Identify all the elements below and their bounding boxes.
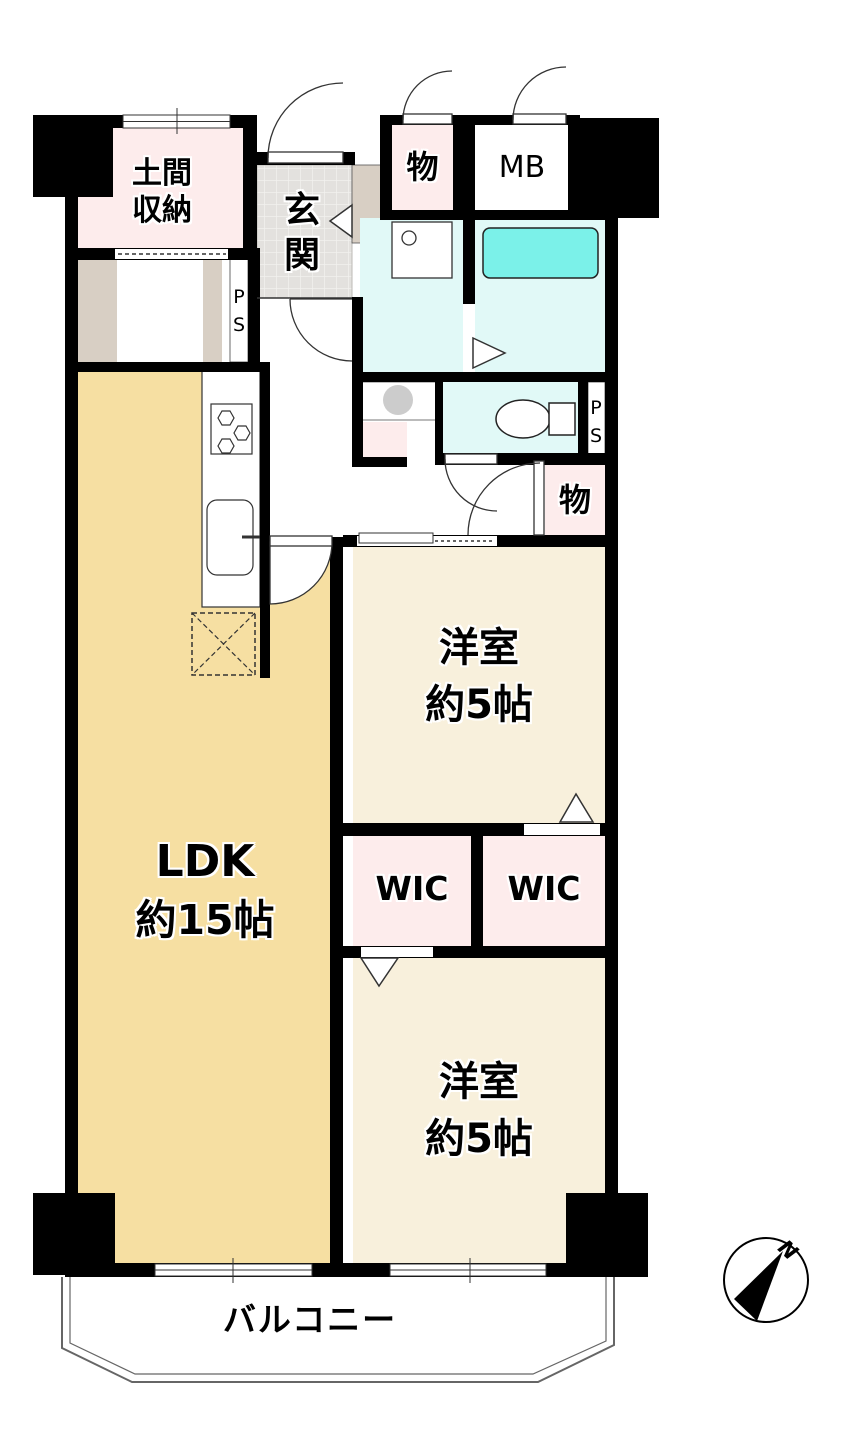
- bedroom2-label: 洋室約5帖: [353, 1054, 605, 1168]
- closet-side-wall-left: [78, 258, 117, 362]
- meter-box-label: MB: [476, 150, 568, 186]
- storage-top-door-leaf: [403, 114, 452, 124]
- toilet-door-leaf: [445, 454, 497, 464]
- storage-mid-label: 物: [545, 481, 605, 519]
- wic-left-label: WIC: [353, 868, 471, 910]
- closet-side-wall-right: [203, 258, 222, 362]
- hallway: [270, 370, 332, 537]
- floor-plan: 土間収納 玄関 物 MB PS PS 物 洋室約5帖 WIC WIC 洋室約5帖…: [0, 0, 863, 1438]
- toilet-icon: [496, 400, 575, 438]
- basin-drain-icon: [402, 231, 416, 245]
- ldk-label: LDK約15帖: [78, 833, 332, 949]
- entrance-door-swing: [268, 83, 343, 158]
- balcony-label: バルコニー: [150, 1302, 470, 1337]
- mb-door-leaf: [513, 114, 566, 124]
- compass-needle-icon: [734, 1251, 783, 1321]
- wash-basin: [392, 222, 452, 278]
- doma-storage-label: 土間収納: [92, 155, 232, 229]
- entrance-door-leaf: [268, 152, 343, 163]
- storage-mid-door-leaf: [534, 461, 544, 535]
- linen-closet: [360, 422, 407, 457]
- washing-machine-icon: [383, 385, 413, 415]
- stove-burner-icon: [218, 411, 234, 425]
- pipe-space-top-label: PS: [230, 283, 248, 339]
- wic-right-opening: [524, 824, 600, 835]
- bedroom1-label: 洋室約5帖: [353, 620, 605, 734]
- ldk-door-leaf: [270, 536, 332, 546]
- storage-top-label: 物: [392, 148, 453, 186]
- stove-burner-icon: [218, 439, 234, 453]
- genkan-label: 玄関: [282, 188, 322, 278]
- pipe-space-right-label: PS: [587, 394, 605, 450]
- wic-left-opening: [361, 947, 433, 957]
- bathtub: [483, 228, 598, 278]
- stove-burner-icon: [234, 426, 250, 440]
- hall-door-swing: [290, 299, 352, 361]
- wic-right-label: WIC: [483, 868, 605, 910]
